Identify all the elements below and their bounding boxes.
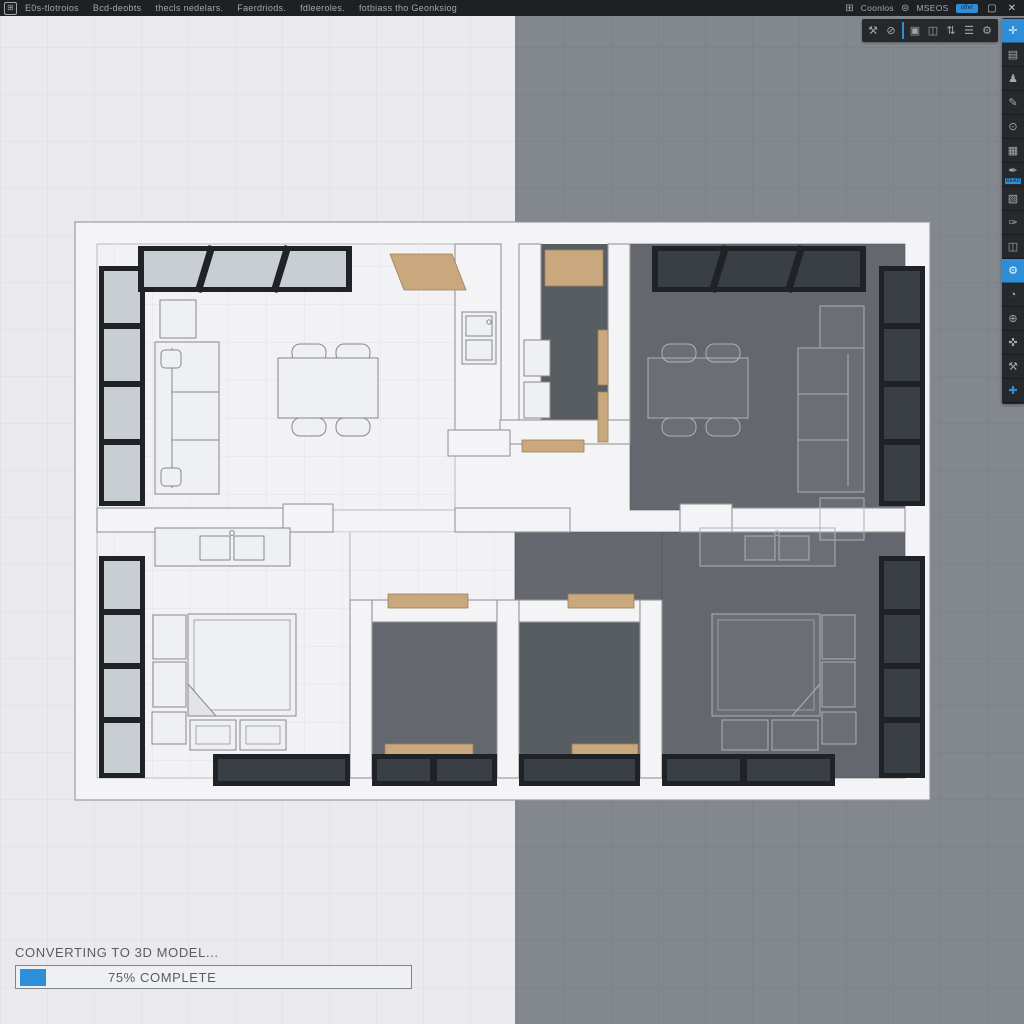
active-mode-badge[interactable]: offet [956, 4, 979, 13]
person-icon[interactable]: ♟ [1002, 67, 1024, 91]
annotate-icon[interactable]: ✒ READ [1002, 163, 1024, 187]
menu-item-6[interactable]: fotbiass tho Geonksiog [359, 3, 457, 13]
menu-item-5[interactable]: fdleeroles. [300, 3, 345, 13]
app-icon: ⊞ [4, 2, 17, 15]
move-icon[interactable]: ✜ [1002, 331, 1024, 355]
layout-grid-icon[interactable]: ⊞ [845, 3, 853, 14]
grid-icon[interactable]: ▦ [1002, 139, 1024, 163]
wrench-icon[interactable]: ⚒ [864, 21, 882, 40]
disable-icon[interactable]: ⊘ [882, 21, 900, 40]
menu-item-3[interactable]: thecls nedelars. [155, 3, 223, 13]
progress-bar: 75% COMPLETE [15, 965, 412, 989]
document-icon[interactable]: ▤ [1002, 43, 1024, 67]
search-icon[interactable]: ⊙ [1002, 115, 1024, 139]
progress-bar-fill [20, 969, 46, 986]
viewport-canvas[interactable] [0, 16, 1024, 1024]
right-tool-sidebar: ✛ ▤ ♟ ✎ ⊙ ▦ ✒ READ ▧ ✑ ◫ ⚙ ◔ ⊕ ✜ ⚒ ✚ [1002, 18, 1024, 404]
sign-icon[interactable]: ✑ [1002, 211, 1024, 235]
help-label[interactable]: MSEOS [916, 3, 948, 13]
top-toolbar: ⚒ ⊘ ▣ ◫ ⇅ ☰ ⚙ [862, 19, 998, 42]
close-button[interactable]: ✕ [1006, 3, 1018, 14]
annotate-mini-label: READ [1005, 178, 1022, 184]
pen-icon[interactable]: ✎ [1002, 91, 1024, 115]
hallway [350, 532, 662, 600]
settings-icon[interactable]: ⚙ [1002, 259, 1024, 283]
furniture-bedroom-right [712, 614, 856, 750]
window-icon[interactable]: ◫ [924, 21, 942, 40]
vanity-left [155, 528, 290, 566]
progress-label: 75% COMPLETE [108, 970, 216, 985]
gear-icon[interactable]: ⚙ [978, 21, 996, 40]
vanity-right [700, 528, 835, 566]
add-icon[interactable]: ⊕ [1002, 307, 1024, 331]
plus-icon[interactable]: ✚ [1002, 379, 1024, 403]
title-bar: ⊞ E0s-tlotroios Bcd-deobts thecls nedela… [0, 0, 1024, 16]
conversion-status-text: CONVERTING TO 3D MODEL... [15, 945, 219, 960]
select-icon[interactable]: ▣ [906, 21, 924, 40]
furniture-bedroom-left [152, 614, 296, 750]
menu-item-2[interactable]: Bcd-deobts [93, 3, 142, 13]
swap-icon[interactable]: ⇅ [942, 21, 960, 40]
tools-icon[interactable]: ⚒ [1002, 355, 1024, 379]
hatch-icon[interactable]: ▧ [1002, 187, 1024, 211]
pan-icon[interactable]: ✛ [1002, 19, 1024, 43]
help-icon[interactable]: ⊜ [901, 3, 909, 14]
timer-icon[interactable]: ◔ [1002, 283, 1024, 307]
panels-icon[interactable]: ◫ [1002, 235, 1024, 259]
floorplan [75, 222, 930, 800]
list-icon[interactable]: ☰ [960, 21, 978, 40]
menu-item-1[interactable]: E0s-tlotroios [25, 3, 79, 13]
annotate-glyph: ✒ [1008, 165, 1017, 177]
layout-grid-label[interactable]: Coonlos [861, 3, 894, 13]
menu-item-4[interactable]: Faerdriods. [237, 3, 286, 13]
toolbar-divider [902, 22, 904, 39]
maximize-button[interactable]: ▢ [985, 3, 998, 14]
